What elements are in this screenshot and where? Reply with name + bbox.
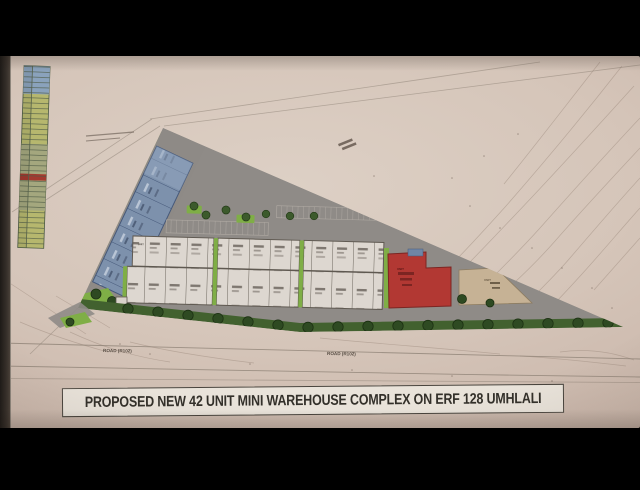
unit-label: UNIT	[138, 242, 145, 246]
survey-dash-mark	[338, 138, 357, 151]
unit-label: UNIT	[484, 278, 491, 282]
site-area: UNIT UNIT UNIT	[28, 56, 623, 333]
road-r102-label: ROAD (R102)	[103, 348, 132, 354]
site-plan-photo: UNIT UNIT UNIT	[0, 56, 640, 428]
plan-annotation-note	[86, 132, 134, 141]
title-text: PROPOSED NEW 42 UNIT MINI WAREHOUSE COMP…	[85, 390, 542, 411]
red-building-blue-cap	[408, 249, 423, 256]
paper-left-edge	[0, 56, 11, 428]
road-r102-label: ROAD (R102)	[327, 351, 356, 357]
unit-label: UNIT	[397, 267, 404, 271]
title-banner: PROPOSED NEW 42 UNIT MINI WAREHOUSE COMP…	[62, 384, 564, 417]
site-plan-drawing: UNIT UNIT UNIT	[0, 56, 640, 428]
legend-strip	[18, 66, 50, 249]
warehouse-block-lower	[126, 266, 383, 309]
